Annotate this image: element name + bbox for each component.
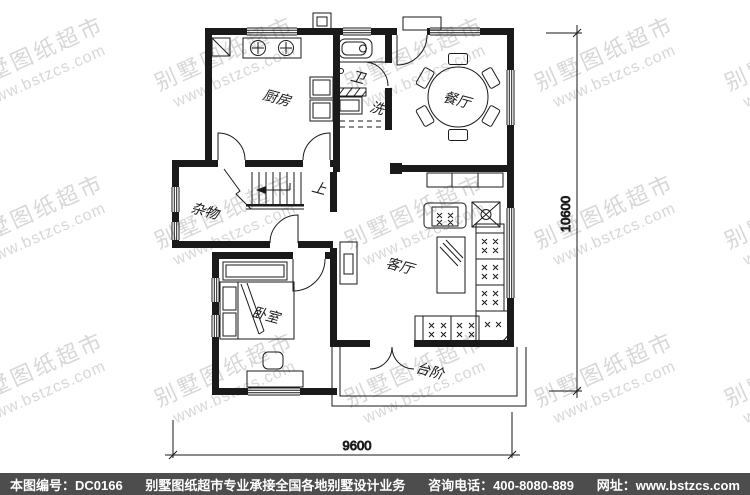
blueprint-canvas: 别墅图纸超市 www.bstzcs.com <box>0 0 750 473</box>
drawing-number: 本图编号：DC0166 <box>10 475 123 494</box>
watermark-layer <box>0 0 750 473</box>
dimension-height-label: 10600 <box>558 196 573 232</box>
footer-bar: 本图编号：DC0166 别墅图纸超市专业承接全国各地别墅设计业务 咨询电话：40… <box>0 473 750 495</box>
footer-phone: 咨询电话：400-8080-889 <box>428 475 574 494</box>
dimension-width-label: 9600 <box>343 438 372 453</box>
footer-slogan: 别墅图纸超市专业承接全国各地别墅设计业务 <box>145 475 405 494</box>
blueprint-page: 别墅图纸超市 www.bstzcs.com <box>0 0 750 495</box>
footer-website: 网址：www.bstzcs.com <box>597 475 740 494</box>
